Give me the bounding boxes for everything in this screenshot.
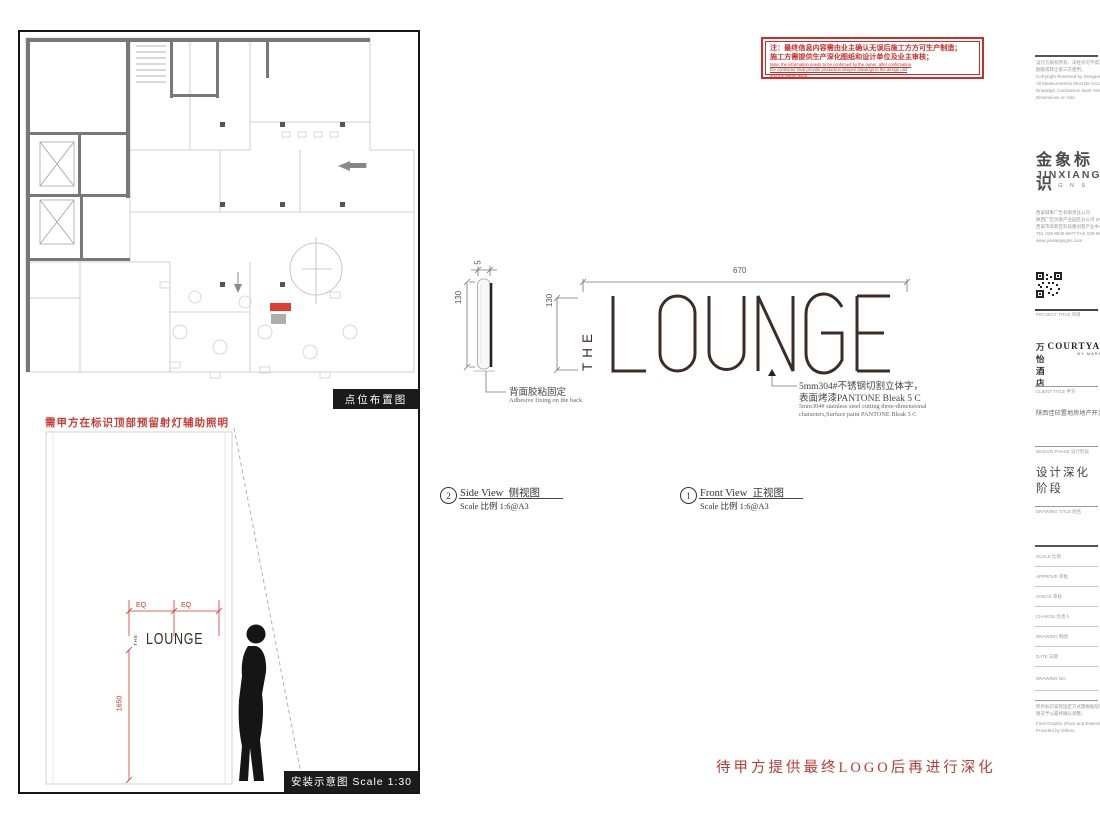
floor-plan-drawing — [20, 32, 418, 408]
center-drawing — [420, 30, 1035, 795]
plan-stairs — [40, 46, 166, 244]
field-scale: SCALE 比例 — [1036, 554, 1061, 560]
field-line — [1035, 626, 1098, 627]
field-line — [1035, 606, 1098, 607]
project-title: 万怡酒店 COURTYARD BY MARRIOTT — [1036, 341, 1098, 389]
field-line — [1035, 586, 1098, 587]
front-note-cn-2: 表面烤漆PANTONE Bleak 5 C — [799, 390, 921, 404]
side-thickness-dim: 5 — [474, 260, 483, 264]
plan-column-circle — [290, 237, 342, 304]
brand-logo-en: JINXIANG — [1036, 169, 1100, 181]
front-view-callout: 1 — [680, 487, 697, 504]
tb-footer: 所有标识安装固定方式需根据现场实际 情况予以最终确认调整。 Final Grap… — [1036, 704, 1100, 735]
person-silhouette — [239, 625, 267, 782]
drawing-title-rule — [1035, 506, 1098, 507]
logo-the-vertical: THE — [580, 297, 595, 371]
side-view-callout: 2 — [440, 487, 457, 504]
client-rule — [1035, 386, 1098, 387]
dimension-lines — [464, 266, 910, 392]
phase-rule — [1035, 446, 1098, 447]
field-approve: APPROVE 审批 — [1036, 574, 1068, 580]
plan-columns — [220, 122, 345, 287]
side-view-scale: Scale 比例 1:6@A3 — [460, 500, 529, 512]
plan-furniture — [160, 132, 357, 378]
eq-dim-right: EQ — [181, 602, 191, 609]
installation-drawing — [20, 410, 418, 792]
client-name: 陕西佳印置地房地产开发有限公司 — [1036, 408, 1100, 417]
lounge-logo-letters — [613, 294, 890, 373]
mini-logo-lounge: LOUNGE — [146, 631, 203, 649]
field-drawing-no: DRAWING NO. — [1036, 676, 1067, 681]
front-height-dim: 130 — [545, 294, 554, 307]
front-note-en-1: 5mm304# stainless steel cutting three-di… — [799, 403, 927, 410]
eq-dim-left: EQ — [136, 602, 146, 609]
leader-arrow — [768, 369, 776, 376]
plan-gray-block — [271, 314, 286, 324]
footer-rule — [1035, 700, 1098, 701]
front-view-scale: Scale 比例 1:6@A3 — [700, 500, 769, 512]
mini-logo-the: THE — [133, 634, 138, 646]
front-width-dim: 670 — [733, 266, 746, 275]
side-note-cn: 背面胶粘固定 — [509, 384, 566, 398]
tb-top-rule — [1035, 55, 1098, 57]
project-title-cn: 万怡酒店 — [1036, 341, 1045, 389]
install-red-note: 需甲方在标识顶部预留射灯辅助照明 — [45, 415, 229, 430]
client-label: CLIENT TITLE 甲方 — [1036, 389, 1076, 395]
plan-walls — [26, 38, 370, 372]
copyright-block: 设计方版权所有，未经许可不得复制 翻版或转让第三方使用。 CoPyright R… — [1036, 60, 1100, 102]
qr-code — [1036, 272, 1062, 298]
plan-caption: 点位布置图 — [333, 389, 419, 409]
field-drawing: DRAWING 制图 — [1036, 634, 1068, 640]
project-rule — [1035, 309, 1098, 311]
company-info-block: 西安城象广告有限责任公司 陕西广告创意产业园区分公司 2F 西安市高新区科技路创… — [1036, 210, 1100, 245]
install-caption: 安装示意图 Scale 1:30 — [284, 771, 419, 792]
side-view-drawing — [474, 279, 495, 371]
front-note-en-2: characters,Surface paint PANTONE Bleak 5… — [799, 411, 917, 418]
phase-value: 设计深化阶段 — [1036, 464, 1100, 496]
brand-logo-sub: S I G N S — [1038, 183, 1088, 189]
pending-logo-note: 待甲方提供最终LOGO后再进行深化 — [716, 756, 996, 777]
field-charge: CHARGE 负责人 — [1036, 614, 1070, 620]
project-title-en: COURTYARD — [1048, 341, 1100, 351]
drawing-title-label: DRAWING TITLE 图名 — [1036, 509, 1081, 515]
field-line — [1035, 690, 1098, 691]
phase-label: DESIGN PHASE 设计阶段 — [1036, 449, 1089, 455]
height-dim-1650: 1650 — [116, 696, 123, 712]
project-title-sub: BY MARRIOTT — [1077, 351, 1100, 356]
field-line — [1035, 666, 1098, 667]
sign-location-marker — [270, 303, 291, 311]
field-line — [1035, 646, 1098, 647]
field-check: CHECK 审核 — [1036, 594, 1062, 600]
side-view-rule — [459, 498, 563, 499]
field-line — [1035, 566, 1098, 567]
front-view-rule — [699, 498, 803, 499]
side-note-en: Adhesive fixing on the back — [509, 397, 582, 404]
entrance-label: 酒店入口 — [349, 163, 367, 169]
project-label: PROJECT TITLE 项目 — [1036, 312, 1081, 318]
field-date: DATE 日期 — [1036, 654, 1058, 660]
fields-top-rule — [1035, 545, 1098, 547]
side-height-dim: 130 — [454, 291, 463, 304]
